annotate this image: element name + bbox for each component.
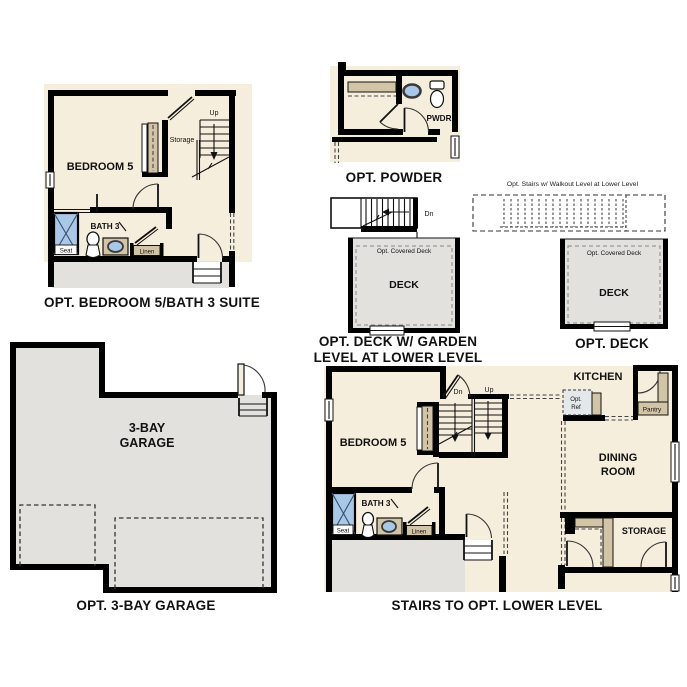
- storage-closet: [142, 123, 158, 173]
- dashed-treads: [504, 199, 623, 227]
- plan-garage-drawing: 3-BAY GARAGE: [5, 336, 295, 598]
- vanity-sink: [103, 238, 128, 255]
- up-label: Up: [210, 110, 219, 117]
- storage-closet: [417, 406, 433, 451]
- toilet-icon: [362, 513, 374, 538]
- caption-opt-deck: OPT. DECK: [552, 336, 672, 352]
- dn-label: Dn: [454, 389, 463, 396]
- opt-ref: [563, 390, 601, 415]
- covered-deck-label: Opt. Covered Deck: [587, 250, 642, 257]
- linen-label: Linen: [140, 249, 155, 256]
- plan-lower-level-drawing: Seat Linen: [322, 362, 687, 597]
- deck-label: DECK: [389, 279, 419, 291]
- plan-deck-garden-drawing: Dn Opt. Covered Deck DECK: [325, 190, 465, 338]
- plan-stairs-lower-level: Seat Linen: [322, 362, 687, 597]
- sink-icon: [404, 85, 421, 98]
- plan-powder-drawing: PWDR: [328, 60, 463, 170]
- toilet-icon: [86, 232, 100, 258]
- opt-stairs-dashed: [470, 191, 670, 235]
- caption-3bay-garage: OPT. 3-BAY GARAGE: [26, 598, 266, 614]
- plan-deck-garden: Dn Opt. Covered Deck DECK: [325, 190, 465, 338]
- opt-ref-label-line2: Ref: [571, 404, 581, 411]
- plan-bedroom5-bath3-drawing: Seat Linen: [40, 82, 265, 294]
- plan-opt-powder: PWDR: [328, 60, 463, 170]
- walkout-stairs-note: Opt. Stairs w/ Walkout Level at Lower Le…: [475, 180, 670, 189]
- floor-plan-sheet: Seat Linen: [0, 0, 687, 687]
- storage-label: STORAGE: [622, 526, 666, 536]
- plan-3bay-garage: 3-BAY GARAGE: [5, 336, 295, 598]
- dn-label: Dn: [425, 211, 434, 218]
- bath3-label: BATH 3: [91, 222, 120, 231]
- storage-label: Storage: [170, 137, 195, 144]
- pwdr-label: PWDR: [426, 114, 451, 123]
- linen-label: Linen: [412, 529, 427, 536]
- pantry-label: Pantry: [643, 407, 662, 414]
- caption-opt-powder: OPT. POWDER: [324, 170, 464, 186]
- bedroom5-label: BEDROOM 5: [67, 161, 134, 173]
- garage-label-line1: 3-BAY: [129, 421, 166, 435]
- kitchen-label: KITCHEN: [574, 371, 623, 383]
- caption-deck-garden-line1: OPT. DECK W/ GARDEN: [319, 334, 477, 349]
- plan-deck-drawing: Opt. Covered Deck DECK: [556, 233, 672, 335]
- garage-entry-door: [238, 364, 265, 395]
- garage-floor: [13, 345, 274, 590]
- garage-label-line2: GARAGE: [120, 436, 175, 450]
- dining-label-line2: ROOM: [601, 466, 635, 478]
- dashed-stairs-drawing: [470, 191, 670, 235]
- caption-deck-garden: OPT. DECK W/ GARDENLEVEL AT LOWER LEVEL: [312, 334, 484, 365]
- bedroom5-label: BEDROOM 5: [340, 437, 407, 449]
- up-label: Up: [485, 387, 494, 394]
- bath3-label: BATH 3: [362, 499, 391, 508]
- opt-ref-label-line1: Opt.: [570, 396, 582, 403]
- covered-deck-label: Opt. Covered Deck: [377, 248, 432, 255]
- plan-opt-deck: Opt. Covered Deck DECK: [556, 233, 672, 335]
- seat-label: Seat: [60, 248, 73, 255]
- lower-steps: [464, 540, 492, 560]
- stairs-dn: [331, 198, 418, 238]
- plan-bedroom5-bath3-suite: Seat Linen: [40, 82, 265, 294]
- toilet-icon: [430, 81, 444, 108]
- caption-opt-bedroom5-bath3-suite: OPT. BEDROOM 5/BATH 3 SUITE: [20, 295, 284, 311]
- seat-label: Seat: [337, 528, 350, 535]
- lower-steps: [193, 262, 221, 283]
- caption-stairs-lower-level: STAIRS TO OPT. LOWER LEVEL: [337, 598, 657, 614]
- deck-label: DECK: [599, 287, 629, 299]
- vanity-sink: [377, 518, 402, 535]
- dining-label-line1: DINING: [599, 452, 638, 464]
